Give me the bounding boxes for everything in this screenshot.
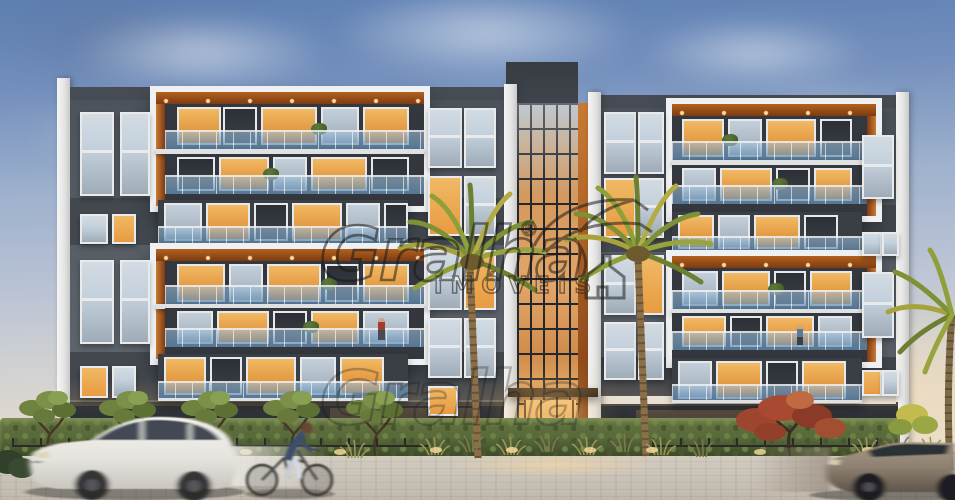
facade-window-small bbox=[112, 366, 136, 398]
facade-window-small bbox=[80, 214, 108, 244]
cloud bbox=[70, 15, 330, 90]
atrium-right-pilaster bbox=[588, 92, 601, 452]
facade-window-small bbox=[428, 386, 458, 416]
person-on-balcony bbox=[378, 318, 385, 340]
facade-window bbox=[464, 318, 496, 378]
entrance-canopy bbox=[508, 388, 598, 397]
facade-window bbox=[862, 272, 894, 338]
atrium-reflection bbox=[517, 103, 578, 193]
balcony-row bbox=[672, 313, 867, 350]
facade-window bbox=[638, 112, 664, 174]
left-balcony-box-upper bbox=[150, 86, 430, 212]
facade-window bbox=[638, 322, 664, 380]
wood-soffit bbox=[156, 249, 424, 261]
left-balcony-box-lower bbox=[150, 243, 430, 365]
facade-window bbox=[638, 178, 664, 238]
wood-soffit bbox=[672, 256, 876, 268]
glass-railing bbox=[672, 141, 867, 160]
facade-window bbox=[464, 176, 496, 236]
hedge bbox=[0, 418, 900, 456]
balcony-row bbox=[672, 165, 867, 204]
wood-soffit bbox=[672, 104, 876, 116]
facade-window bbox=[80, 112, 114, 196]
facade-window bbox=[80, 260, 114, 344]
facade-window bbox=[604, 178, 636, 238]
facade-window bbox=[120, 260, 150, 344]
glass-railing bbox=[165, 175, 424, 194]
left-corner-pilaster bbox=[57, 78, 70, 452]
right-open-balcony-row-lower bbox=[672, 358, 862, 403]
glass-railing bbox=[158, 381, 408, 398]
facade-window-small bbox=[112, 214, 136, 244]
facade-window bbox=[638, 255, 664, 315]
right-balcony-box-upper bbox=[666, 98, 882, 222]
wood-jamb bbox=[156, 104, 165, 206]
facade-window-small bbox=[882, 370, 899, 396]
facade-window-small bbox=[862, 370, 882, 396]
balcony-row bbox=[165, 261, 424, 304]
balcony-row bbox=[165, 308, 424, 347]
person-on-balcony bbox=[797, 326, 803, 345]
balcony-row bbox=[672, 268, 867, 309]
facade-window bbox=[428, 108, 462, 168]
facade-window bbox=[604, 255, 636, 315]
rendering-photo: Gralha ® IMÓVEIS Gralha bbox=[0, 0, 955, 500]
wood-jamb bbox=[156, 261, 165, 359]
left-open-balcony-row bbox=[158, 200, 408, 246]
glass-railing bbox=[672, 331, 867, 350]
facade-window bbox=[604, 112, 636, 174]
facade-window bbox=[464, 250, 496, 310]
facade-window-small bbox=[862, 232, 882, 256]
facade-window bbox=[428, 176, 462, 236]
right-open-balcony-row bbox=[672, 212, 862, 255]
glass-railing bbox=[165, 328, 424, 347]
left-open-balcony-row-lower bbox=[158, 354, 408, 401]
balcony-row bbox=[672, 116, 867, 160]
right-balcony-box-lower bbox=[666, 250, 882, 368]
facade-window bbox=[428, 250, 462, 310]
facade-window bbox=[604, 322, 636, 380]
wood-soffit bbox=[156, 92, 424, 104]
facade-window-small bbox=[80, 366, 108, 398]
glass-railing bbox=[672, 290, 867, 309]
glass-railing bbox=[672, 384, 862, 400]
glass-railing bbox=[158, 226, 408, 243]
facade-window bbox=[120, 112, 150, 196]
facade-window-small bbox=[882, 232, 899, 256]
glass-railing bbox=[672, 185, 867, 204]
cloud bbox=[640, 22, 870, 84]
atrium-wood-jamb bbox=[578, 103, 588, 452]
glass-railing bbox=[165, 130, 424, 149]
facade-window bbox=[464, 108, 496, 168]
balcony-row bbox=[165, 104, 424, 149]
facade-window bbox=[428, 318, 462, 378]
balcony-row bbox=[165, 154, 424, 194]
facade-window bbox=[862, 135, 894, 199]
glass-railing bbox=[165, 285, 424, 304]
